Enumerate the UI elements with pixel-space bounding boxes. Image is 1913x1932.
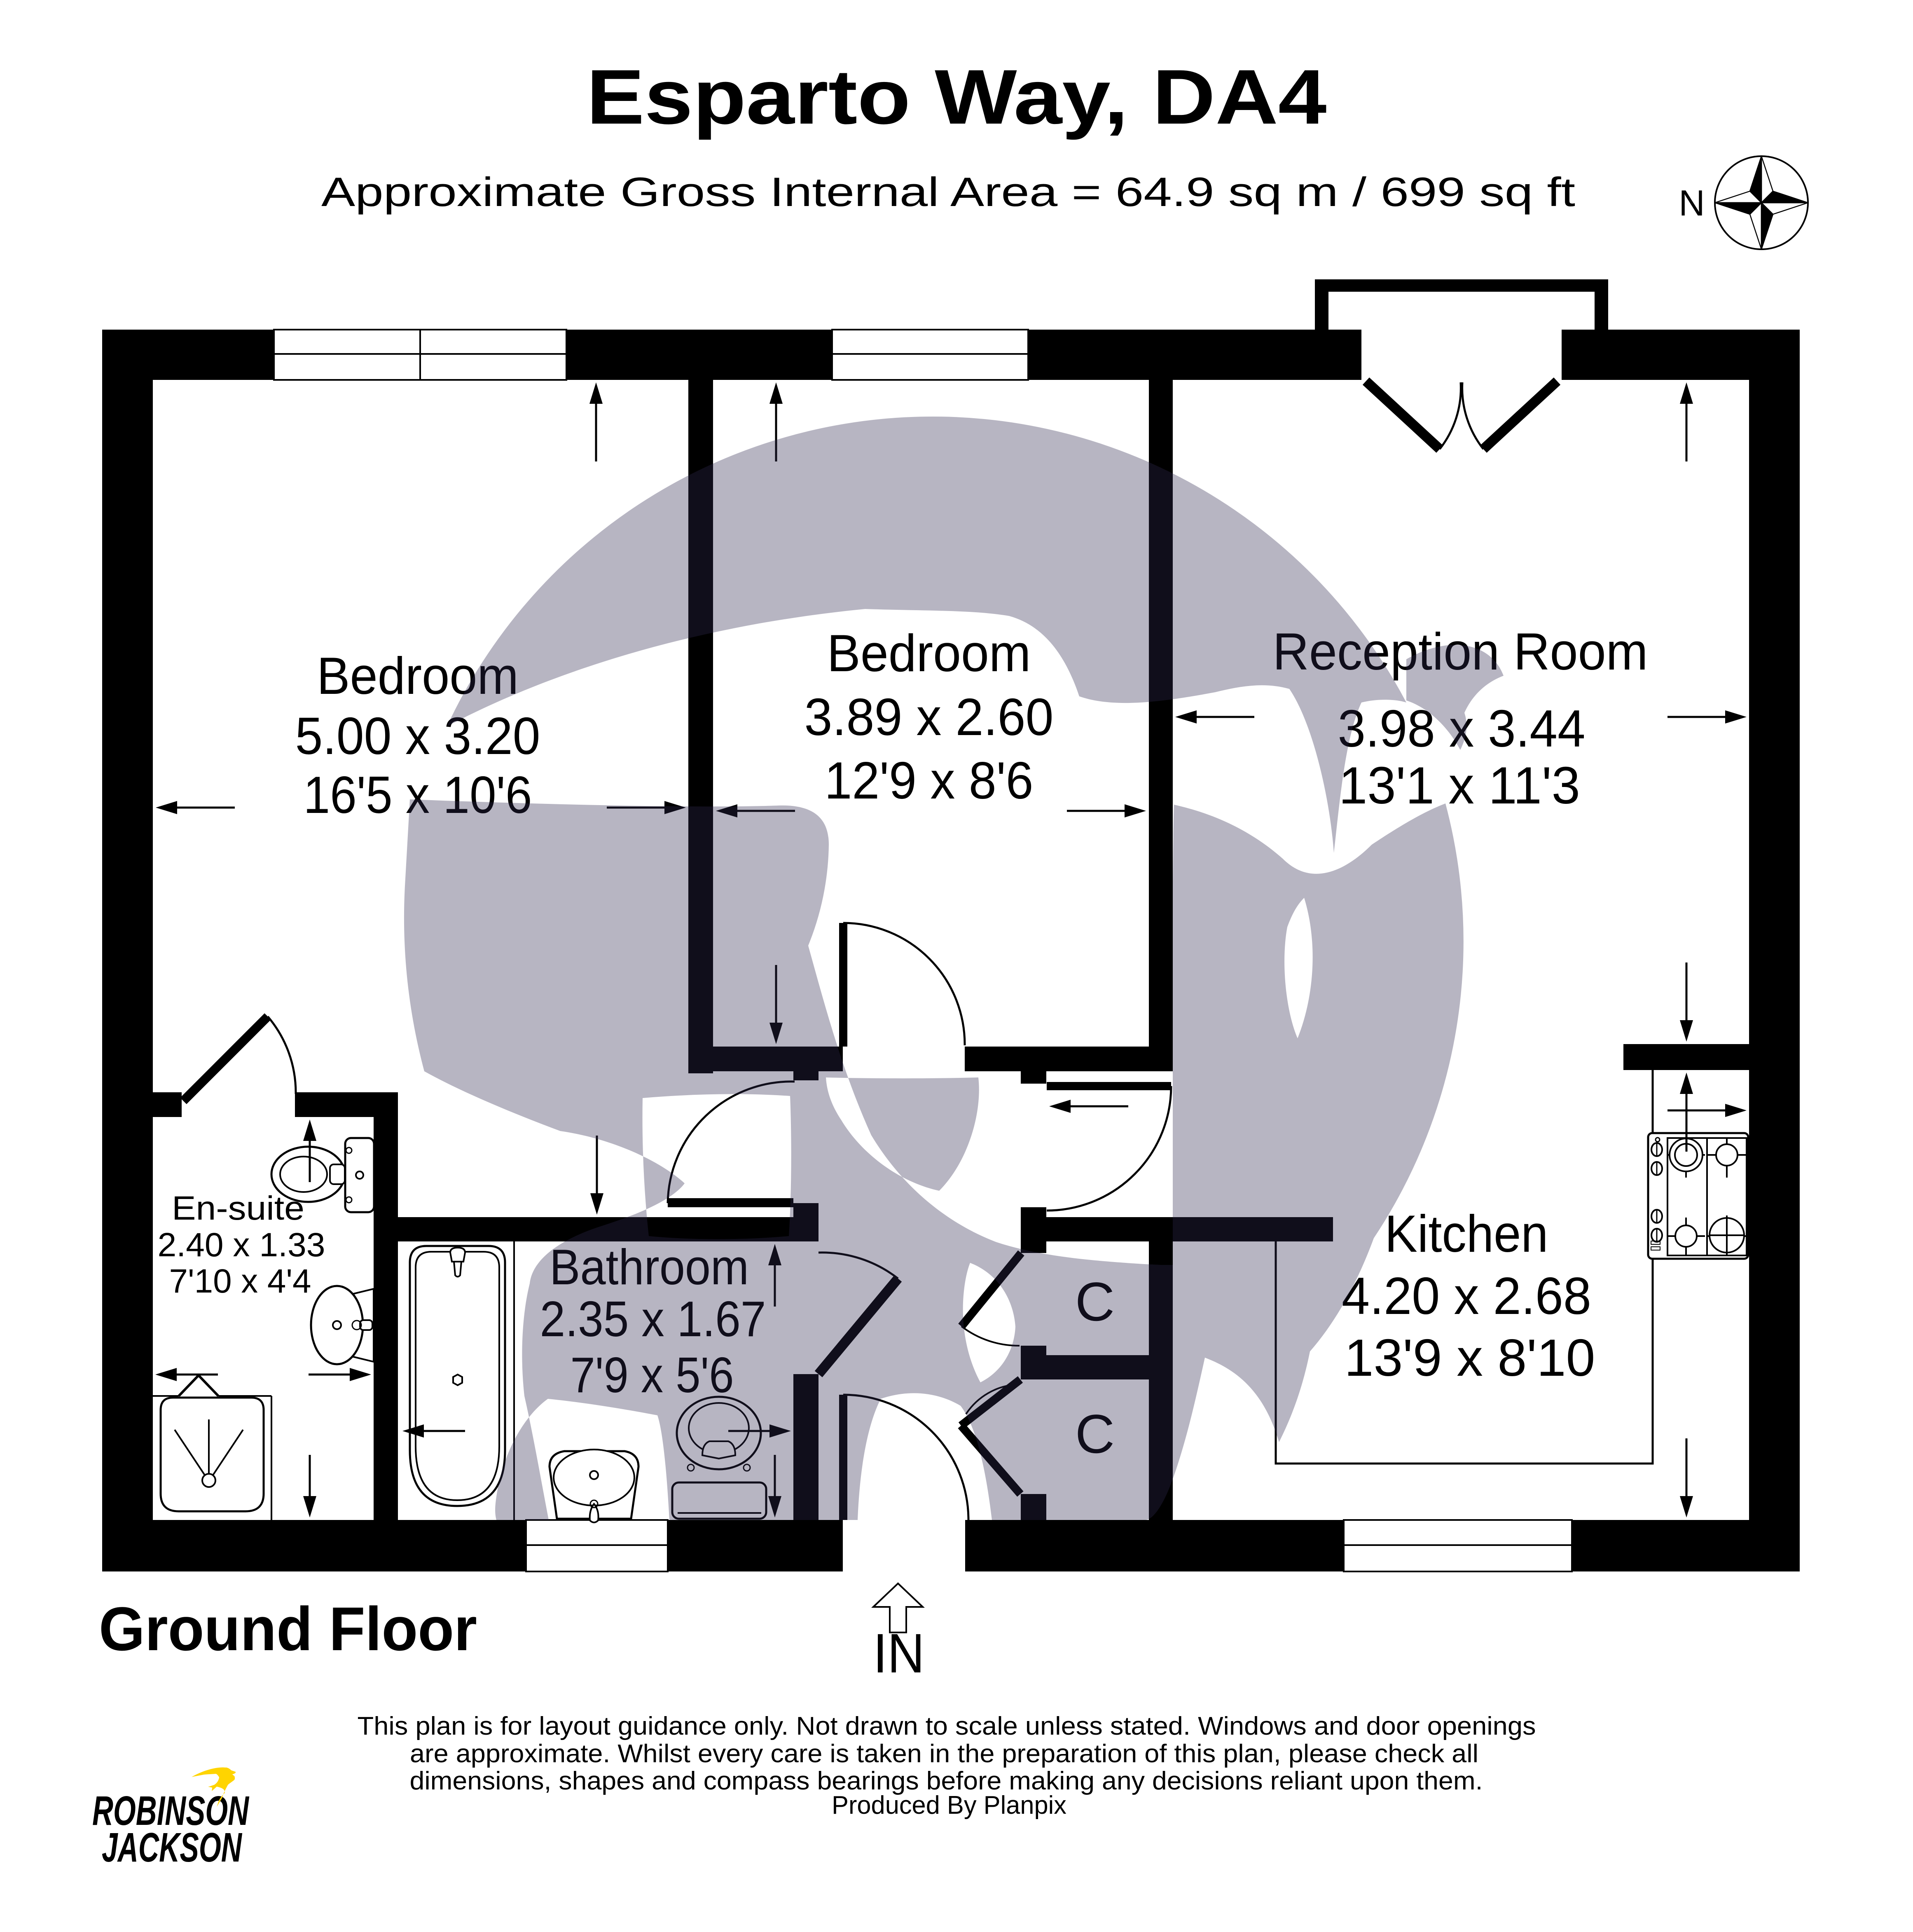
svg-text:7'10 x 4'4: 7'10 x 4'4 [169,1262,311,1300]
svg-text:2.40 x 1.33: 2.40 x 1.33 [158,1226,325,1264]
svg-text:En-suite: En-suite [172,1190,304,1227]
svg-text:IN: IN [873,1622,925,1684]
svg-text:12'9 x 8'6: 12'9 x 8'6 [825,751,1034,810]
svg-text:JACKSON: JACKSON [102,1824,242,1871]
svg-text:13'1 x 11'3: 13'1 x 11'3 [1339,756,1580,815]
svg-text:N: N [1679,183,1705,223]
svg-text:Bedroom: Bedroom [827,624,1031,682]
svg-text:5.00 x 3.20: 5.00 x 3.20 [295,707,540,765]
svg-text:13'9 x 8'10: 13'9 x 8'10 [1345,1328,1595,1387]
svg-text:This plan is for layout guidan: This plan is for layout guidance only. N… [358,1712,1536,1740]
svg-text:Esparto Way, DA4: Esparto Way, DA4 [587,54,1327,140]
svg-text:are approximate. Whilst every: are approximate. Whilst every care is ta… [410,1740,1478,1768]
svg-text:3.89 x 2.60: 3.89 x 2.60 [804,688,1054,746]
svg-text:Kitchen: Kitchen [1385,1204,1548,1263]
svg-text:Approximate Gross Internal Are: Approximate Gross Internal Area = 64.9 s… [321,169,1575,215]
svg-text:Ground Floor: Ground Floor [99,1594,477,1663]
svg-text:4.20 x 2.68: 4.20 x 2.68 [1342,1267,1591,1325]
svg-text:Produced By Planpix: Produced By Planpix [832,1791,1066,1820]
